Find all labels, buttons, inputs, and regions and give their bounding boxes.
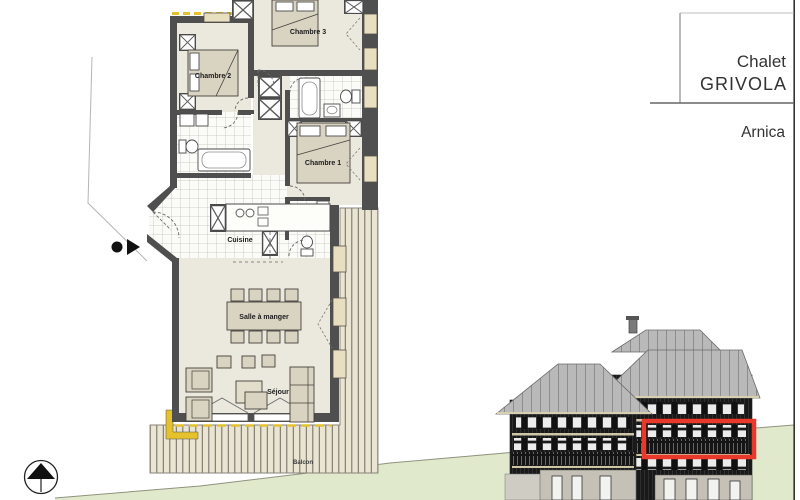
room-label-chambre-1: Chambre 1 (305, 160, 341, 167)
coffee-table (245, 392, 267, 409)
apartment-name: Arnica (741, 124, 785, 141)
toilet-tank (179, 140, 186, 153)
door (708, 479, 719, 500)
building-name-line2: GRIVOLA (700, 74, 787, 94)
pouf (217, 356, 231, 368)
door (686, 479, 697, 500)
room-label-cuisine: Cuisine (227, 237, 252, 244)
building-name-line1: Chalet (737, 52, 786, 71)
toilet-tank (352, 90, 360, 103)
retaining-wall (505, 474, 541, 500)
floor-band (512, 466, 634, 468)
roof-upper (612, 330, 722, 352)
armchair (186, 368, 212, 392)
building-elevation (496, 316, 760, 500)
chair (285, 331, 298, 343)
room-label-sejour: Séjour (267, 389, 289, 396)
chimney (629, 319, 637, 333)
door (664, 479, 675, 500)
pouf (242, 356, 255, 368)
vanity (196, 114, 208, 126)
floor-band (512, 433, 634, 436)
sofa (290, 367, 314, 422)
door (730, 481, 740, 500)
overhang-line (88, 57, 147, 261)
toilet (341, 90, 352, 103)
door (600, 476, 611, 500)
chair (285, 289, 298, 301)
room-label-salle-a-manger: Salle à manger (239, 314, 289, 321)
window-row (516, 417, 630, 429)
chair (267, 289, 280, 301)
window-row (514, 438, 632, 450)
drawing-sheet: Chambre 2 Chambre 3 Chambre 1 Cuisine Sa… (0, 0, 800, 500)
entrance-arrow-icon (112, 239, 141, 255)
room-label-balcon: Balcon (293, 460, 313, 466)
chimney-cap (626, 316, 639, 320)
door (552, 476, 562, 500)
pouf (262, 355, 275, 367)
floor-plan: Chambre 2 Chambre 3 Chambre 1 Cuisine Sa… (88, 0, 378, 473)
site-drawing: Chambre 2 Chambre 3 Chambre 1 Cuisine Sa… (0, 0, 800, 500)
toilet-tank (301, 249, 313, 256)
chair (267, 331, 280, 343)
room-label-chambre-3: Chambre 3 (290, 29, 326, 36)
balcony-railing (512, 452, 634, 465)
chair (249, 331, 262, 343)
chair (231, 331, 244, 343)
toilet (186, 140, 198, 153)
chair (249, 289, 262, 301)
toilet (302, 236, 313, 248)
north-compass-icon (25, 461, 58, 494)
chair (231, 289, 244, 301)
room-label-chambre-2: Chambre 2 (195, 73, 231, 80)
vanity (180, 114, 194, 126)
kitchen-counter (226, 204, 330, 231)
door (572, 476, 582, 500)
armchair (186, 397, 212, 421)
